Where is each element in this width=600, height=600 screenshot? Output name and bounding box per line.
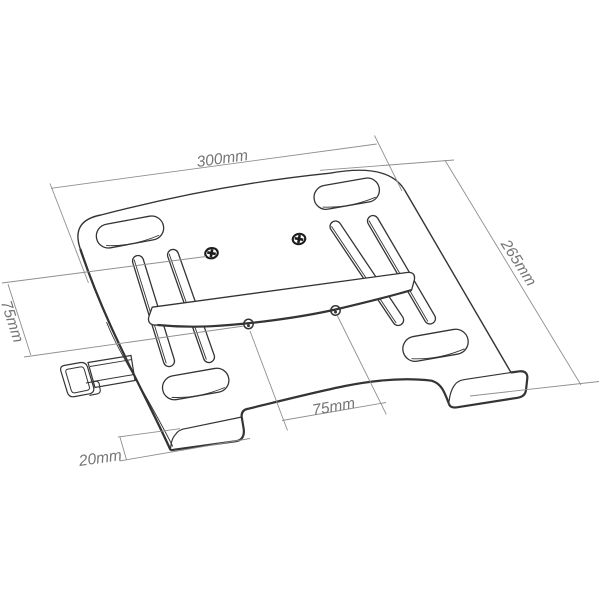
svg-text:20mm: 20mm bbox=[77, 447, 123, 470]
svg-text:75mm: 75mm bbox=[311, 395, 356, 419]
svg-text:75mm: 75mm bbox=[0, 298, 27, 344]
svg-text:300mm: 300mm bbox=[196, 147, 250, 171]
